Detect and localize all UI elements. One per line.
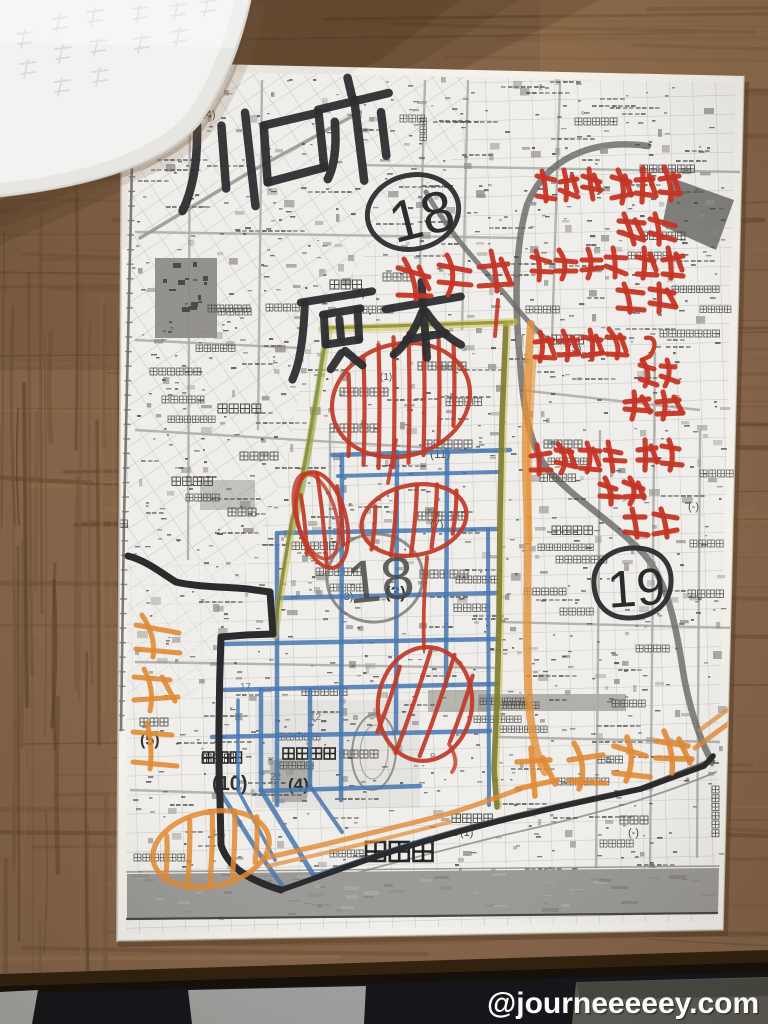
svg-text:@journeeeeey.com: @journeeeeey.com [487, 987, 759, 1020]
